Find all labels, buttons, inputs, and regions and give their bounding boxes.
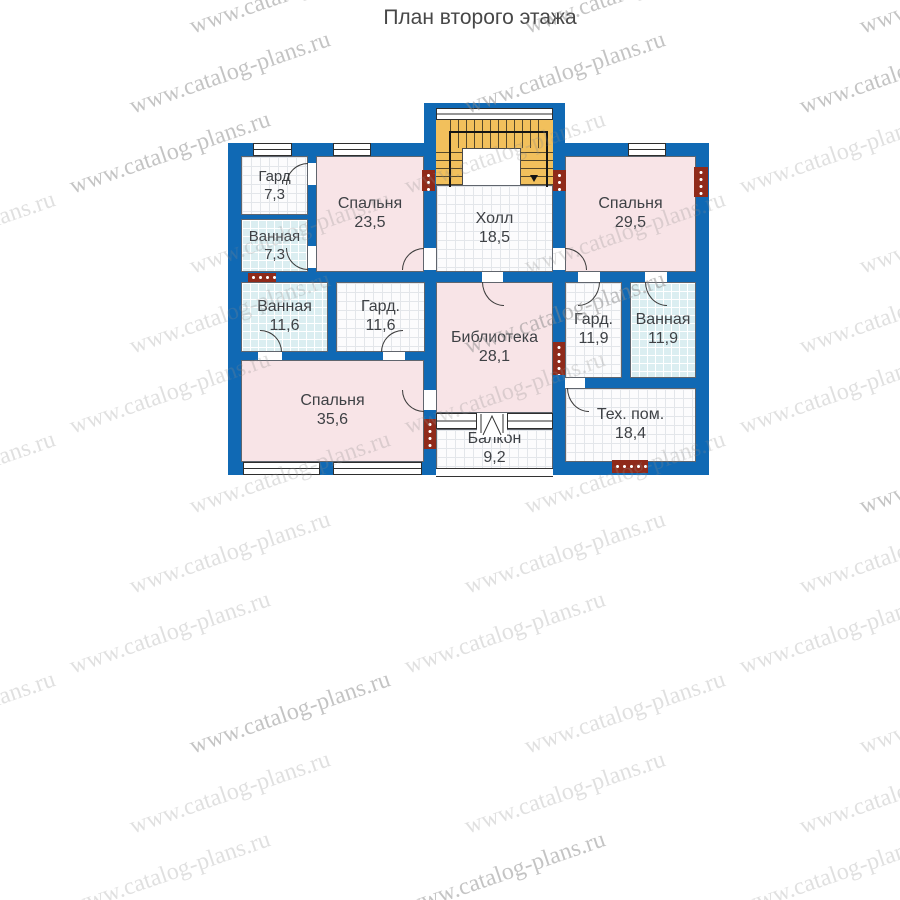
room-area: 11,9 (636, 330, 691, 349)
watermark-text: www.catalog-plans.ru (796, 506, 900, 600)
watermark-text: www.catalog-plans.ru (401, 586, 609, 680)
watermark-text: www.catalog-plans.ru (856, 186, 900, 280)
window (333, 462, 422, 475)
door-opening (308, 246, 316, 268)
window (333, 143, 371, 156)
watermark-text: www.catalog-plans.ru (856, 666, 900, 760)
room-name: Гард. (574, 311, 613, 330)
watermark-text: www.catalog-plans.ru (66, 826, 274, 900)
vent-block (553, 170, 566, 191)
watermark-text: www.catalog-plans.ru (0, 0, 59, 41)
balcony-railing (436, 468, 553, 477)
vent-block (422, 170, 435, 191)
room-name: Ванная (249, 228, 300, 245)
watermark-text: www.catalog-plans.ru (736, 346, 900, 440)
balcony-french-door (477, 413, 507, 437)
room-vannaya-11-6: Ванная11,6 (241, 282, 328, 352)
watermark-text: www.catalog-plans.ru (461, 506, 669, 600)
watermark-text: www.catalog-plans.ru (736, 826, 900, 900)
vent-block (694, 167, 708, 197)
watermark-text: www.catalog-plans.ru (66, 586, 274, 680)
door-opening (482, 272, 503, 282)
door-opening (258, 352, 282, 360)
plan-title: План второго этажа (330, 6, 630, 30)
door-opening (645, 272, 667, 282)
vent-block (553, 342, 565, 375)
watermark-text: www.catalog-plans.ru (0, 426, 59, 520)
watermark-text: www.catalog-plans.ru (401, 826, 609, 900)
room-area: 29,5 (598, 214, 662, 233)
room-name: Спальня (598, 195, 662, 214)
door-opening (578, 272, 600, 282)
room-name: Библиотека (451, 329, 538, 348)
window (628, 143, 666, 156)
door-opening (424, 390, 436, 410)
room-name: Спальня (338, 195, 402, 214)
room-name: Тех. пом. (597, 406, 664, 425)
watermark-text: www.catalog-plans.ru (796, 266, 900, 360)
watermark-text: www.catalog-plans.ru (856, 426, 900, 520)
watermark-text: www.catalog-plans.ru (186, 666, 394, 760)
room-name: Холл (476, 210, 514, 229)
room-area: 23,5 (338, 214, 402, 233)
watermark-text: www.catalog-plans.ru (521, 666, 729, 760)
watermark-text: www.catalog-plans.ru (736, 106, 900, 200)
door-opening (424, 248, 436, 270)
window (436, 413, 477, 429)
window (253, 143, 292, 156)
door-opening (308, 163, 316, 185)
watermark-text: www.catalog-plans.ru (0, 186, 59, 280)
window (507, 413, 553, 429)
vent-block (424, 419, 436, 449)
window (436, 108, 553, 120)
room-area: 11,9 (574, 330, 613, 349)
door-opening (553, 248, 565, 270)
floor-plan: Гард7,3 Ванная7,3 Спальня23,5 Холл18,5 С… (228, 103, 709, 475)
door-opening (565, 378, 585, 388)
room-spalnya-29-5: Спальня29,5 (565, 156, 696, 272)
vent-block (248, 273, 276, 282)
room-area: 18,5 (476, 229, 514, 248)
door-opening (383, 352, 405, 360)
watermark-text: www.catalog-plans.ru (0, 666, 59, 760)
staircase-direction-arrow (530, 175, 538, 182)
watermark-text: www.catalog-plans.ru (856, 0, 900, 41)
watermark-text: www.catalog-plans.ru (126, 746, 334, 840)
watermark-text: www.catalog-plans.ru (736, 586, 900, 680)
watermark-text: www.catalog-plans.ru (796, 26, 900, 120)
room-area: 18,4 (597, 425, 664, 444)
room-holl: Холл18,5 (436, 185, 553, 272)
room-area: 7,3 (258, 186, 290, 203)
vent-block (612, 460, 648, 473)
room-area: 35,6 (300, 411, 364, 430)
room-name: Спальня (300, 392, 364, 411)
room-area: 28,1 (451, 348, 538, 367)
watermark-text: www.catalog-plans.ru (461, 746, 669, 840)
room-name: Ванная (257, 298, 312, 317)
watermark-text: www.catalog-plans.ru (796, 746, 900, 840)
page: www.catalog-plans.ruwww.catalog-plans.ru… (0, 0, 900, 900)
room-name: Ванная (636, 311, 691, 330)
watermark-text: www.catalog-plans.ru (126, 506, 334, 600)
room-area: 9,2 (468, 449, 522, 468)
room-gard-11-6: Гард.11,6 (336, 282, 425, 352)
window (243, 462, 320, 475)
room-name: Гард. (361, 298, 400, 317)
room-spalnya-35-6: Спальня35,6 (241, 360, 424, 462)
